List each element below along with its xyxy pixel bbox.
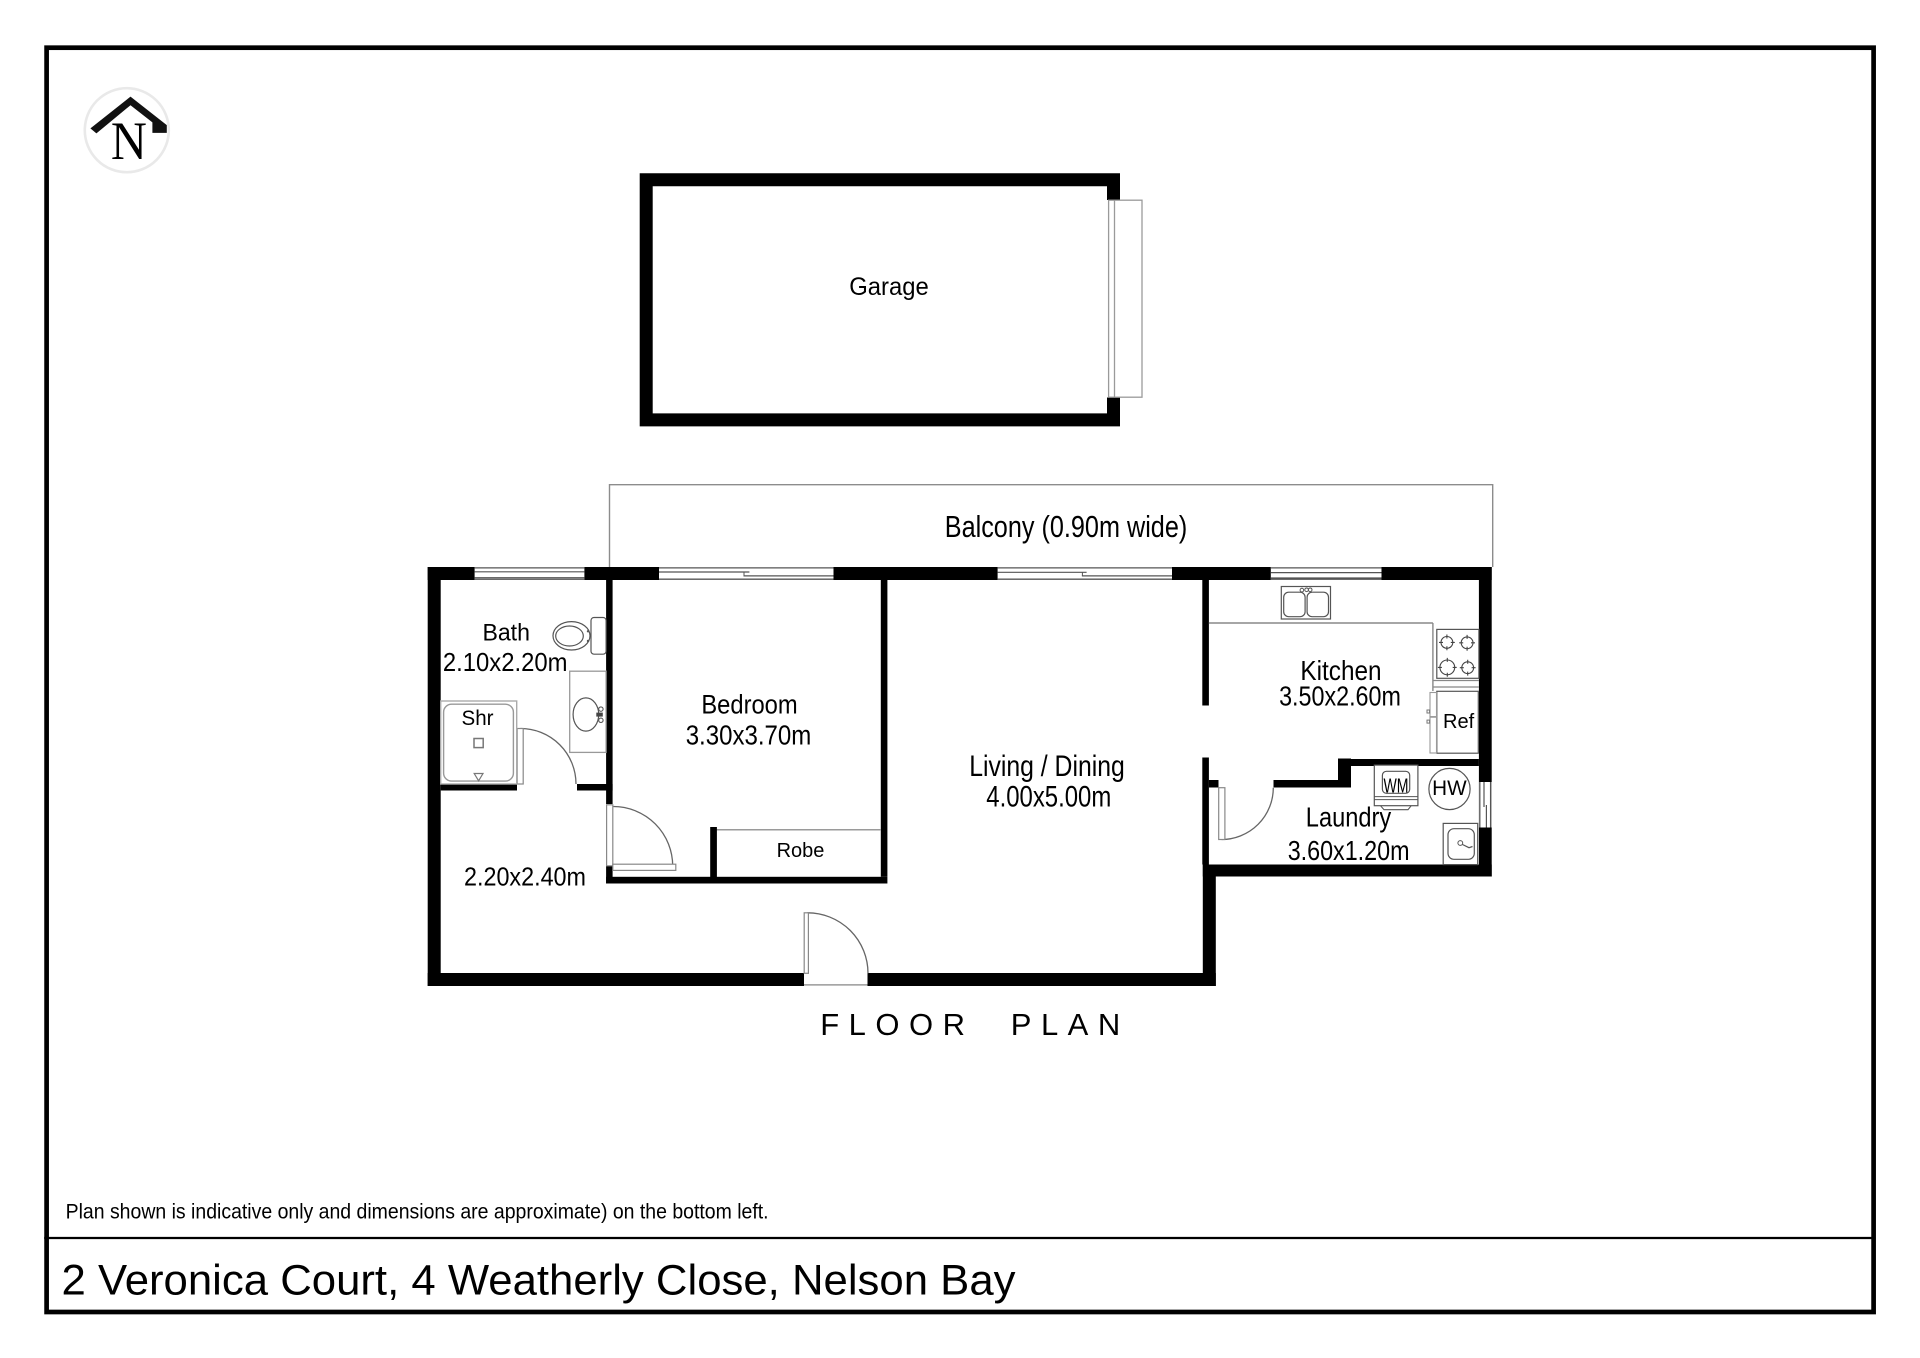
svg-text:Bath: Bath [482,620,530,647]
svg-text:2.20x2.40m: 2.20x2.40m [464,861,586,891]
svg-text:Balcony (0.90m wide): Balcony (0.90m wide) [945,509,1188,544]
svg-text:Bedroom: Bedroom [701,690,797,720]
svg-text:Plan shown is indicative only: Plan shown is indicative only and dimens… [66,1201,769,1224]
svg-text:Robe: Robe [777,839,825,862]
svg-text:WM: WM [1384,775,1409,797]
svg-text:HW: HW [1432,777,1467,800]
svg-text:Living / Dining: Living / Dining [969,750,1125,783]
svg-text:Ref: Ref [1443,711,1475,733]
svg-text:3.60x1.20m: 3.60x1.20m [1288,835,1410,866]
svg-text:3.50x2.60m: 3.50x2.60m [1279,680,1401,711]
svg-text:2 Veronica Court, 4 Weatherly: 2 Veronica Court, 4 Weatherly Close, Nel… [62,1257,1016,1305]
svg-text:Shr: Shr [462,706,494,730]
svg-text:N: N [111,111,147,171]
svg-text:Garage: Garage [849,273,929,301]
svg-text:2.10x2.20m: 2.10x2.20m [443,647,568,677]
svg-text:FLOOR PLAN: FLOOR PLAN [820,1007,1130,1042]
svg-text:4.00x5.00m: 4.00x5.00m [986,780,1111,813]
svg-text:3.30x3.70m: 3.30x3.70m [686,720,812,751]
